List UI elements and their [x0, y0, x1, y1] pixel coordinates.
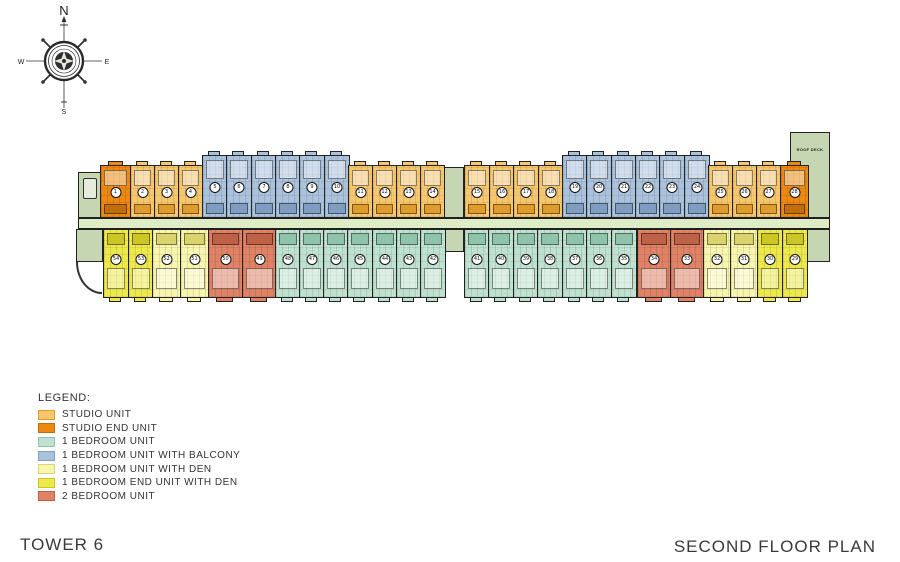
unit-number: 38 — [545, 254, 556, 265]
unit-detail-bath — [712, 204, 729, 214]
corridor — [78, 218, 830, 229]
unit-detail-bath — [230, 203, 248, 214]
unit-number: 30 — [765, 254, 776, 265]
balcony-bump — [544, 161, 556, 166]
unit-number: 45 — [355, 254, 366, 265]
legend-swatch — [38, 423, 55, 433]
unit-two_br: 33 — [670, 229, 704, 298]
legend-item: 1 BEDROOM UNIT — [38, 435, 240, 449]
unit-number: 2 — [137, 187, 148, 198]
unit-detail-bath — [279, 203, 297, 214]
unit-number: 29 — [790, 254, 801, 265]
unit-detail-room — [517, 170, 535, 186]
legend-label: STUDIO END UNIT — [62, 423, 157, 434]
unit-one_br_den: 31 — [730, 229, 758, 298]
unit-detail-bath — [158, 204, 175, 214]
unit-detail-room — [132, 268, 150, 289]
unit-number: 36 — [594, 254, 605, 265]
unit-detail-bath — [786, 233, 804, 245]
unit-detail-room — [158, 170, 175, 186]
balcony-bump — [426, 161, 438, 166]
unit-number: 22 — [643, 182, 654, 193]
unit-studio: 3 — [154, 165, 179, 218]
unit-detail-room — [182, 170, 199, 186]
balcony-bump — [281, 151, 293, 156]
balcony-bump — [788, 297, 801, 302]
unit-studio: 25 — [708, 165, 733, 218]
unit-number: 13 — [403, 187, 414, 198]
unit-detail-room — [663, 160, 681, 179]
unit-number: 53 — [136, 254, 147, 265]
unit-detail-room — [351, 268, 369, 289]
balcony-bump — [108, 161, 123, 166]
unit-detail-room — [212, 268, 239, 289]
unit-number: 20 — [594, 182, 605, 193]
unit-one_br: 42 — [420, 229, 446, 298]
unit-detail-bath — [184, 233, 205, 245]
unit-detail-bath — [134, 204, 151, 214]
unit-detail-room — [492, 268, 510, 289]
unit-detail-bath — [376, 204, 393, 214]
legend-item: 2 BEDROOM UNIT — [38, 490, 240, 504]
unit-number: 6 — [234, 182, 245, 193]
unit-one_br_balcony: 24 — [684, 155, 710, 218]
balcony-bump — [762, 161, 774, 166]
unit-detail-bath — [517, 204, 535, 214]
legend-swatch — [38, 491, 55, 501]
balcony-bump — [305, 297, 317, 302]
unit-detail-room — [468, 268, 486, 289]
balcony-bump — [330, 151, 342, 156]
unit-number: 1 — [110, 187, 121, 198]
roof-deck-label: ROOF DECK — [791, 147, 829, 152]
balcony-bump — [763, 297, 776, 302]
unit-number: 14 — [427, 187, 438, 198]
tower-title: TOWER 6 — [20, 535, 104, 555]
legend-label: 1 BEDROOM END UNIT WITH DEN — [62, 477, 238, 488]
balcony-bump — [250, 297, 267, 302]
unit-detail-room — [400, 268, 418, 289]
unit-number: 27 — [763, 187, 774, 198]
unit-detail-room — [279, 268, 297, 289]
balcony-bump — [494, 297, 506, 302]
unit-number: 40 — [496, 254, 507, 265]
unit-detail-bath — [182, 204, 199, 214]
legend-label: 1 BEDROOM UNIT — [62, 436, 155, 447]
balcony-bump — [568, 151, 580, 156]
unit-detail-bath — [760, 204, 777, 214]
unit-detail-room — [328, 160, 346, 179]
unit-detail-room — [734, 268, 754, 289]
unit-detail-bath — [156, 233, 177, 245]
unit-detail-room — [352, 170, 369, 186]
legend-swatch — [38, 437, 55, 447]
unit-detail-room — [707, 268, 727, 289]
unit-number: 16 — [497, 187, 508, 198]
unit-detail-bath — [590, 233, 608, 245]
unit-detail-bath — [327, 233, 345, 245]
legend-item: STUDIO END UNIT — [38, 422, 240, 436]
unit-studio: 14 — [420, 165, 445, 218]
unit-detail-bath — [328, 203, 346, 214]
floor-plan-title: SECOND FLOOR PLAN — [674, 537, 876, 557]
unit-detail-bath — [734, 233, 754, 245]
balcony-bump — [232, 151, 244, 156]
unit-detail-bath — [761, 233, 779, 245]
unit-studio: 4 — [178, 165, 203, 218]
unit-detail-room — [786, 268, 804, 289]
left-stair-core — [76, 229, 103, 262]
unit-one_br: 47 — [299, 229, 325, 298]
unit-studio: 15 — [464, 165, 490, 218]
unit-two_br: 50 — [208, 229, 243, 298]
balcony-bump — [665, 151, 677, 156]
unit-detail-bath — [424, 204, 441, 214]
unit-detail-bath — [663, 203, 681, 214]
unit-detail-room — [303, 268, 321, 289]
unit-one_br: 36 — [586, 229, 612, 298]
center-elevator-core — [444, 229, 464, 252]
balcony-bump — [737, 297, 751, 302]
unit-number: 37 — [570, 254, 581, 265]
unit-detail-room — [468, 170, 486, 186]
unit-detail-room — [688, 160, 706, 179]
unit-detail-bath — [615, 203, 633, 214]
unit-one_br_balcony: 6 — [226, 155, 252, 218]
legend-label: 1 BEDROOM UNIT WITH DEN — [62, 464, 212, 475]
unit-detail-room — [712, 170, 729, 186]
balcony-bump — [543, 297, 555, 302]
unit-one_br_balcony: 7 — [251, 155, 277, 218]
unit-one_br: 44 — [372, 229, 398, 298]
unit-number: 28 — [789, 187, 800, 198]
unit-number: 50 — [220, 254, 231, 265]
unit-detail-room — [493, 170, 511, 186]
balcony-bump — [617, 151, 629, 156]
unit-one_br: 39 — [513, 229, 539, 298]
unit-detail-bath — [641, 233, 667, 245]
legend-label: STUDIO UNIT — [62, 409, 131, 420]
unit-one_br_end_den: 29 — [782, 229, 808, 298]
unit-studio: 12 — [372, 165, 397, 218]
unit-detail-bath — [784, 204, 805, 214]
unit-detail-room — [303, 160, 321, 179]
unit-detail-bath — [736, 204, 753, 214]
unit-detail-bath — [566, 233, 584, 245]
balcony-bump — [519, 161, 531, 166]
unit-detail-room — [784, 170, 805, 186]
unit-one_br_balcony: 23 — [659, 155, 685, 218]
unit-detail-bath — [590, 203, 608, 214]
unit-detail-room — [590, 268, 608, 289]
unit-detail-bath — [212, 233, 239, 245]
unit-detail-bath — [493, 204, 511, 214]
legend-swatch — [38, 451, 55, 461]
balcony-bump — [160, 161, 172, 166]
unit-detail-bath — [468, 233, 486, 245]
unit-number: 26 — [739, 187, 750, 198]
unit-detail-bath — [517, 233, 535, 245]
unit-number: 44 — [380, 254, 391, 265]
unit-number: 43 — [404, 254, 415, 265]
balcony-bump — [136, 161, 148, 166]
unit-number: 3 — [161, 187, 172, 198]
center-stair-core — [444, 167, 464, 218]
unit-number: 31 — [739, 254, 750, 265]
unit-one_br: 45 — [347, 229, 373, 298]
balcony-bump — [281, 297, 293, 302]
unit-detail-bath — [639, 203, 657, 214]
unit-number: 4 — [185, 187, 196, 198]
unit-detail-bath — [400, 204, 417, 214]
unit-one_br: 38 — [537, 229, 563, 298]
unit-one_br: 40 — [488, 229, 514, 298]
unit-detail-room — [639, 160, 657, 179]
unit-studio: 26 — [732, 165, 757, 218]
unit-detail-room — [674, 268, 700, 289]
unit-detail-room — [542, 170, 560, 186]
unit-detail-room — [107, 268, 125, 289]
unit-detail-room — [376, 268, 394, 289]
unit-number: 8 — [283, 182, 294, 193]
unit-number: 41 — [472, 254, 483, 265]
unit-detail-room — [760, 170, 777, 186]
balcony-bump — [329, 297, 341, 302]
unit-number: 12 — [379, 187, 390, 198]
balcony-bump — [495, 161, 507, 166]
balcony-bump — [159, 297, 173, 302]
unit-two_br: 34 — [637, 229, 671, 298]
unit-detail-bath — [424, 233, 442, 245]
legend-item: 1 BEDROOM END UNIT WITH DEN — [38, 476, 240, 490]
right-stair-core — [806, 229, 830, 262]
unit-one_br: 43 — [396, 229, 422, 298]
balcony-bump — [109, 297, 121, 302]
unit-studio: 2 — [130, 165, 155, 218]
unit-detail-room — [134, 170, 151, 186]
legend-swatch — [38, 478, 55, 488]
unit-studio: 27 — [756, 165, 781, 218]
unit-detail-room — [255, 160, 273, 179]
balcony-bump — [402, 297, 414, 302]
unit-one_br: 48 — [275, 229, 301, 298]
unit-number: 35 — [619, 254, 630, 265]
unit-one_br: 46 — [323, 229, 349, 298]
unit-one_br_balcony: 22 — [635, 155, 661, 218]
unit-number: 7 — [259, 182, 270, 193]
unit-number: 42 — [428, 254, 439, 265]
balcony-bump — [378, 161, 390, 166]
unit-number: 46 — [331, 254, 342, 265]
unit-detail-room — [566, 160, 584, 179]
legend-label: 2 BEDROOM UNIT — [62, 491, 155, 502]
unit-detail-room — [327, 268, 345, 289]
unit-detail-bath — [246, 233, 273, 245]
balcony-bump — [568, 297, 580, 302]
unit-one_br_balcony: 8 — [275, 155, 301, 218]
unit-detail-room — [541, 268, 559, 289]
balcony-bump — [710, 297, 724, 302]
unit-one_br_den: 32 — [703, 229, 731, 298]
unit-one_br: 41 — [464, 229, 490, 298]
left-drive-arc — [76, 262, 102, 294]
unit-number: 10 — [332, 182, 343, 193]
unit-one_br_balcony: 20 — [586, 155, 612, 218]
unit-number: 17 — [521, 187, 532, 198]
unit-two_br: 49 — [242, 229, 277, 298]
unit-number: 33 — [682, 254, 693, 265]
unit-studio: 16 — [489, 165, 515, 218]
unit-detail-room — [184, 268, 205, 289]
unit-one_br_den: 51 — [180, 229, 209, 298]
balcony-bump — [208, 151, 220, 156]
unit-one_br_end_den: 53 — [128, 229, 154, 298]
balcony-bump — [592, 297, 604, 302]
legend-item: STUDIO UNIT — [38, 408, 240, 422]
balcony-bump — [678, 297, 695, 302]
unit-detail-bath — [303, 203, 321, 214]
balcony-bump — [738, 161, 750, 166]
unit-detail-bath — [351, 233, 369, 245]
legend: LEGEND: STUDIO UNITSTUDIO END UNIT1 BEDR… — [38, 392, 240, 503]
balcony-bump — [470, 161, 482, 166]
unit-one_br_balcony: 9 — [299, 155, 325, 218]
balcony-bump — [787, 161, 801, 166]
balcony-bump — [305, 151, 317, 156]
unit-number: 15 — [472, 187, 483, 198]
balcony-bump — [641, 151, 653, 156]
balcony-bump — [645, 297, 662, 302]
balcony-bump — [617, 297, 629, 302]
legend-swatch — [38, 464, 55, 474]
unit-detail-bath — [615, 233, 633, 245]
balcony-bump — [354, 161, 366, 166]
unit-number: 49 — [254, 254, 265, 265]
balcony-bump — [470, 297, 482, 302]
balcony-bump — [134, 297, 146, 302]
unit-one_br_end_den: 54 — [103, 229, 129, 298]
unit-detail-room — [615, 160, 633, 179]
unit-detail-room — [590, 160, 608, 179]
floor-plan-page: N E S W ROOF DECK12345678910111213141516… — [0, 0, 900, 562]
unit-detail-room — [104, 170, 127, 186]
legend-item: 1 BEDROOM UNIT WITH BALCONY — [38, 449, 240, 463]
unit-detail-bath — [542, 204, 560, 214]
unit-number: 18 — [546, 187, 557, 198]
unit-detail-bath — [541, 233, 559, 245]
unit-detail-room — [736, 170, 753, 186]
unit-detail-room — [615, 268, 633, 289]
unit-one_br: 35 — [611, 229, 637, 298]
legend-heading: LEGEND: — [38, 392, 240, 404]
unit-number: 48 — [283, 254, 294, 265]
unit-detail-bath — [352, 204, 369, 214]
balcony-bump — [519, 297, 531, 302]
unit-detail-room — [246, 268, 273, 289]
unit-studio: 11 — [348, 165, 373, 218]
unit-detail-room — [641, 268, 667, 289]
unit-detail-bath — [132, 233, 150, 245]
unit-one_br: 37 — [562, 229, 588, 298]
balcony-bump — [592, 151, 604, 156]
unit-detail-room — [376, 170, 393, 186]
unit-number: 51 — [189, 254, 200, 265]
unit-detail-bath — [707, 233, 727, 245]
unit-detail-room — [424, 268, 442, 289]
unit-number: 9 — [307, 182, 318, 193]
unit-detail-bath — [303, 233, 321, 245]
balcony-bump — [216, 297, 233, 302]
unit-detail-bath — [468, 204, 486, 214]
balcony-bump — [187, 297, 201, 302]
legend-items: STUDIO UNITSTUDIO END UNIT1 BEDROOM UNIT… — [38, 408, 240, 503]
unit-detail-room — [279, 160, 297, 179]
unit-number: 24 — [692, 182, 703, 193]
unit-detail-bath — [688, 203, 706, 214]
unit-number: 19 — [570, 182, 581, 193]
balcony-bump — [378, 297, 390, 302]
unit-detail-bath — [376, 233, 394, 245]
unit-one_br_balcony: 21 — [611, 155, 637, 218]
unit-studio_end: 28 — [780, 165, 809, 218]
unit-studio: 17 — [513, 165, 539, 218]
unit-detail-bath — [566, 203, 584, 214]
legend-label: 1 BEDROOM UNIT WITH BALCONY — [62, 450, 240, 461]
unit-studio: 13 — [396, 165, 421, 218]
unit-detail-bath — [674, 233, 700, 245]
unit-one_br_balcony: 19 — [562, 155, 588, 218]
unit-number: 39 — [521, 254, 532, 265]
unit-detail-bath — [107, 233, 125, 245]
unit-number: 47 — [307, 254, 318, 265]
unit-detail-bath — [279, 233, 297, 245]
unit-detail-bath — [255, 203, 273, 214]
unit-number: 34 — [649, 254, 660, 265]
unit-detail-bath — [104, 204, 127, 214]
balcony-bump — [714, 161, 726, 166]
unit-one_br_end_den: 30 — [757, 229, 783, 298]
legend-item: 1 BEDROOM UNIT WITH DEN — [38, 462, 240, 476]
balcony-bump — [402, 161, 414, 166]
unit-detail-room — [761, 268, 779, 289]
unit-studio: 18 — [538, 165, 564, 218]
unit-one_br_balcony: 5 — [202, 155, 228, 218]
unit-detail-bath — [492, 233, 510, 245]
unit-detail-room — [400, 170, 417, 186]
legend-swatch — [38, 410, 55, 420]
unit-detail-bath — [206, 203, 224, 214]
unit-detail-room — [206, 160, 224, 179]
unit-detail-room — [230, 160, 248, 179]
left-lobby — [78, 172, 102, 218]
unit-number: 54 — [111, 254, 122, 265]
balcony-bump — [184, 161, 196, 166]
unit-number: 23 — [667, 182, 678, 193]
unit-detail-room — [424, 170, 441, 186]
unit-detail-bath — [400, 233, 418, 245]
unit-studio_end: 1 — [100, 165, 131, 218]
unit-one_br_den: 52 — [152, 229, 181, 298]
balcony-bump — [353, 297, 365, 302]
unit-number: 21 — [619, 182, 630, 193]
unit-number: 32 — [712, 254, 723, 265]
unit-detail-room — [566, 268, 584, 289]
unit-one_br_balcony: 10 — [324, 155, 350, 218]
balcony-bump — [426, 297, 438, 302]
unit-detail-room — [517, 268, 535, 289]
unit-detail-room — [156, 268, 177, 289]
unit-number: 5 — [210, 182, 221, 193]
